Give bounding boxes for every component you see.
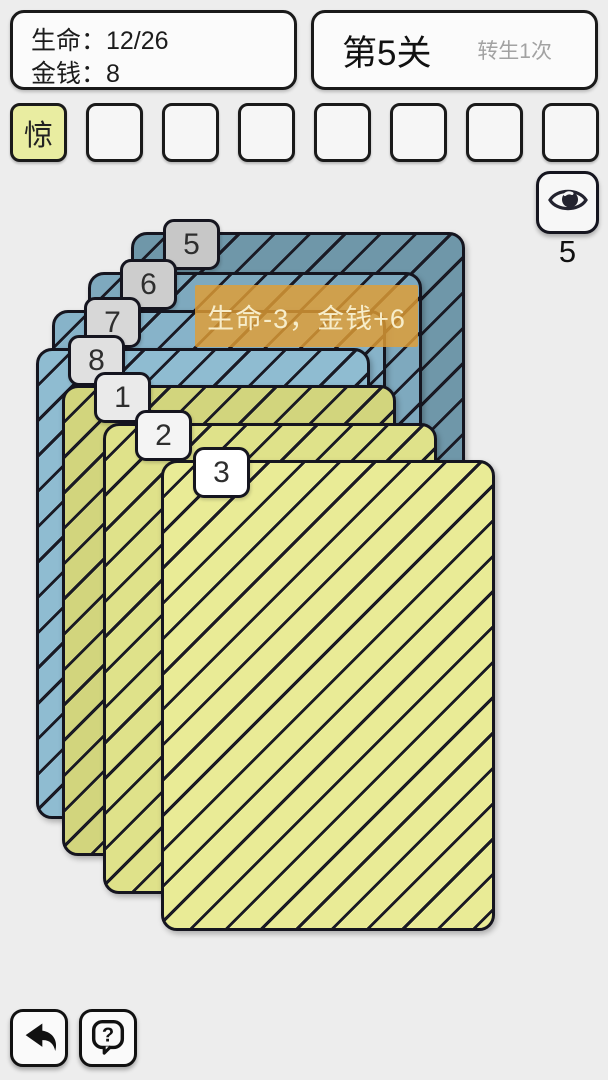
card-2-number: 2: [155, 419, 172, 453]
back-button[interactable]: [10, 1009, 68, 1067]
effect-banner-text: 生命-3，金钱+6: [207, 297, 406, 336]
help-bubble-icon: ?: [87, 1015, 129, 1062]
card-3-number: 3: [213, 456, 230, 490]
card-2-tab[interactable]: 2: [135, 410, 192, 461]
card-stack: 5 6 7 8 1 2 3 生命-3，金钱+6: [0, 0, 608, 1080]
game-screen: 生命：12/26 金钱：8 第5关 转生1次 惊 5 5 6: [0, 0, 608, 1080]
card-3[interactable]: 3: [161, 460, 495, 931]
card-6-number: 6: [140, 268, 157, 302]
back-arrow-icon: [19, 1016, 59, 1061]
effect-banner: 生命-3，金钱+6: [195, 285, 418, 347]
card-5-number: 5: [183, 228, 200, 262]
svg-text:?: ?: [102, 1024, 114, 1046]
card-1-number: 1: [114, 381, 131, 415]
help-button[interactable]: ?: [79, 1009, 137, 1067]
card-3-tab[interactable]: 3: [193, 447, 250, 498]
